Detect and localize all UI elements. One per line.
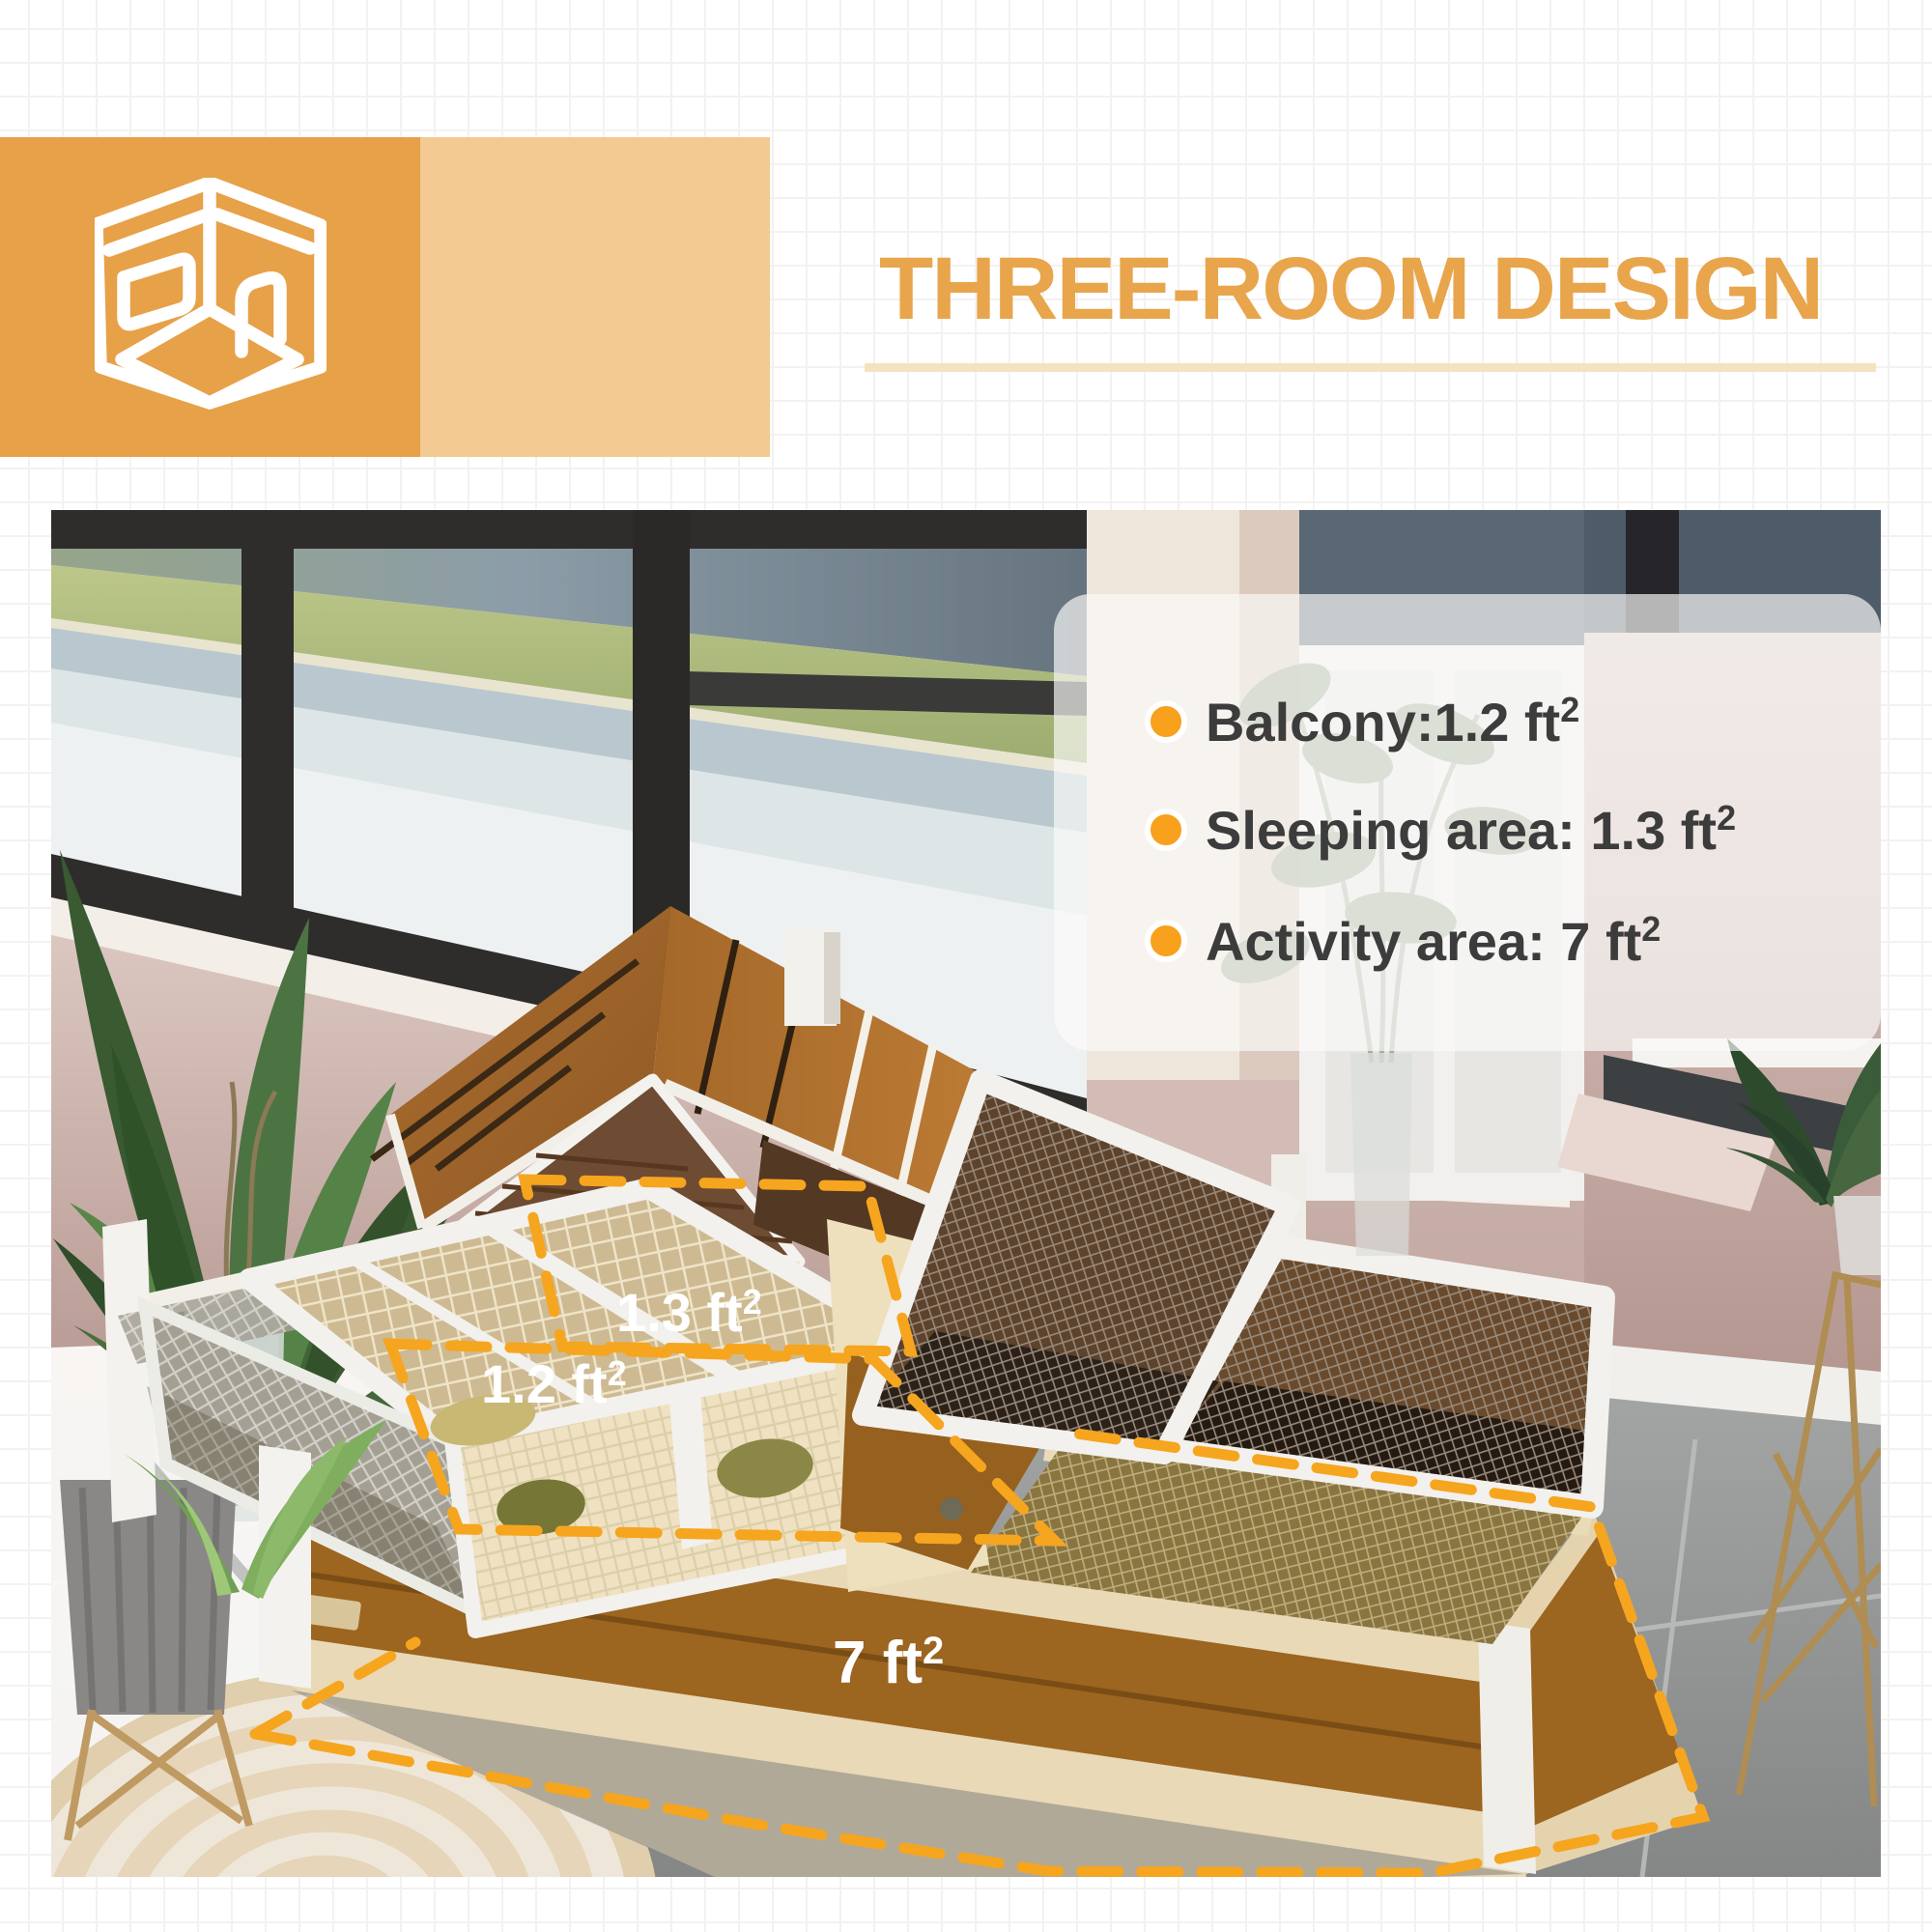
svg-text:Sleeping area: 1.3 ft2: Sleeping area: 1.3 ft2 — [1206, 798, 1736, 861]
svg-text:1.3 ft2: 1.3 ft2 — [616, 1282, 762, 1343]
svg-text:1.2 ft2: 1.2 ft2 — [481, 1353, 627, 1414]
svg-text:Balcony:1.2 ft2: Balcony:1.2 ft2 — [1206, 690, 1579, 753]
svg-text:Activity area: 7 ft2: Activity area: 7 ft2 — [1206, 909, 1661, 972]
